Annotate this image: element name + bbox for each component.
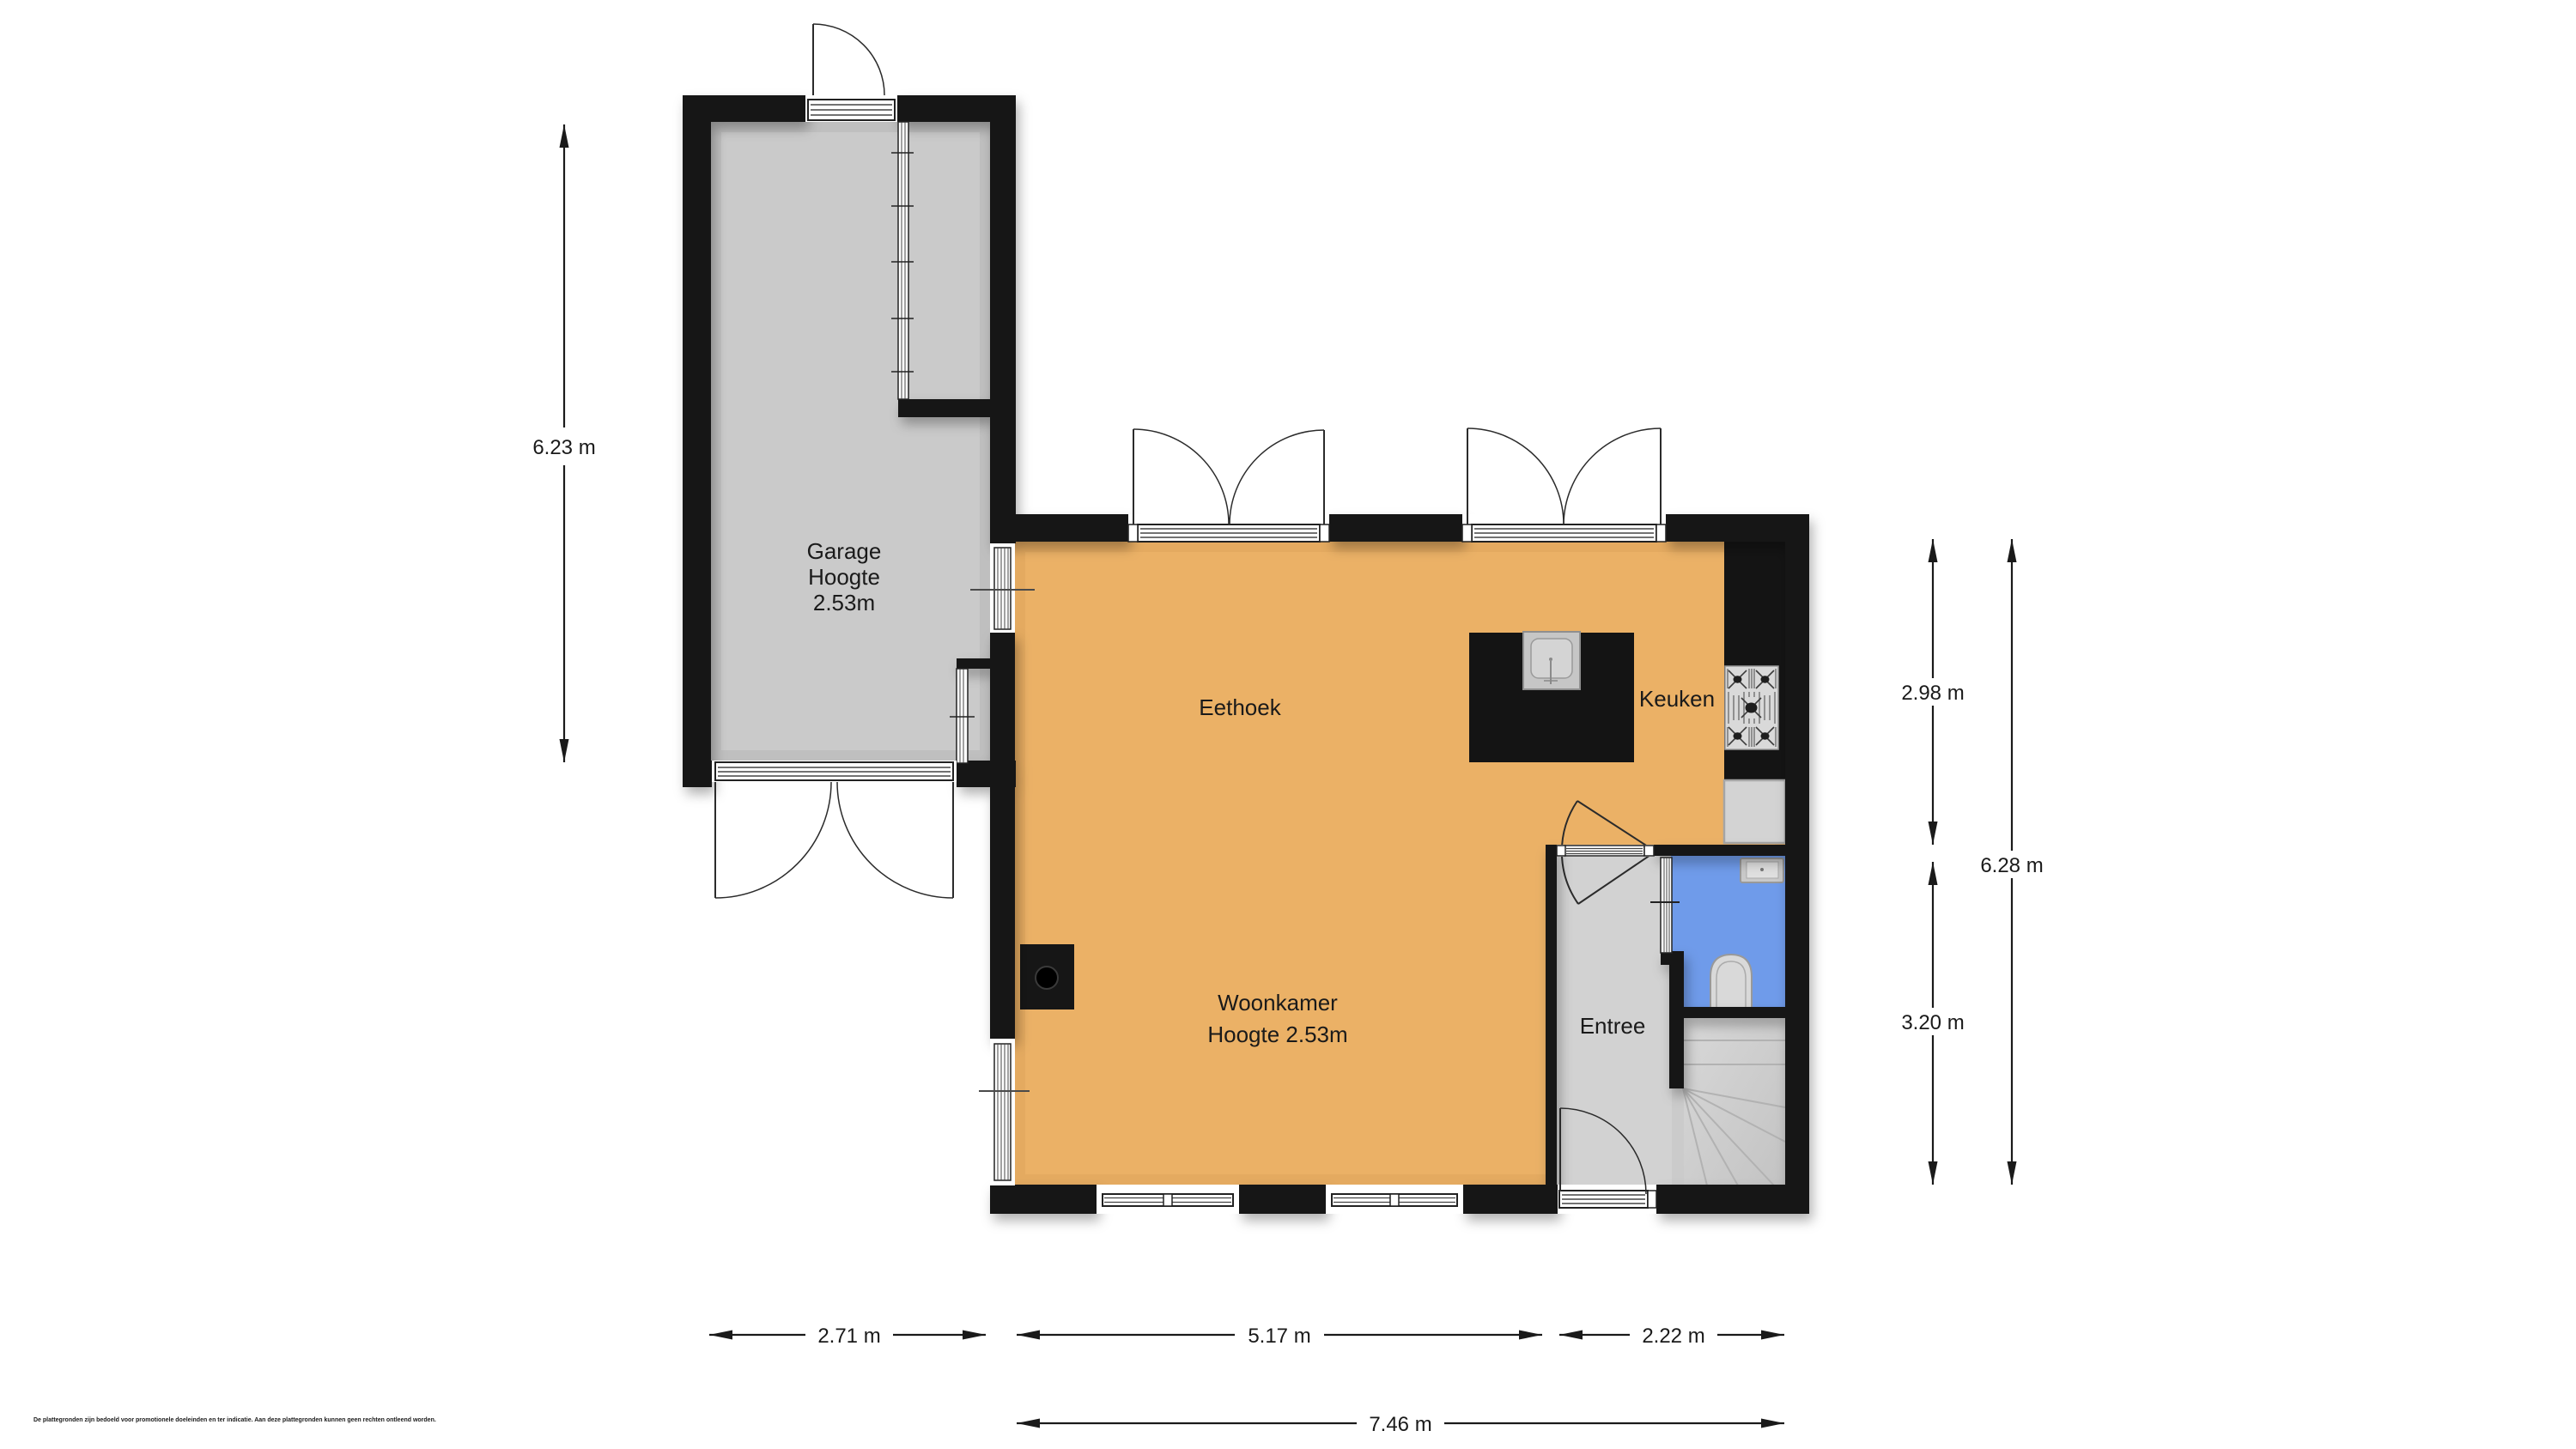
svg-text:6.28 m: 6.28 m: [1980, 854, 2043, 877]
svg-text:Woonkamer: Woonkamer: [1218, 990, 1338, 1016]
svg-text:Entree: Entree: [1580, 1013, 1646, 1039]
svg-text:Keuken: Keuken: [1639, 686, 1715, 712]
svg-text:3.20 m: 3.20 m: [1901, 1011, 1964, 1034]
svg-text:De plattegronden zijn bedoeld: De plattegronden zijn bedoeld voor promo…: [33, 1417, 436, 1423]
svg-text:2.98 m: 2.98 m: [1901, 682, 1964, 705]
svg-text:Garage: Garage: [807, 538, 882, 564]
svg-text:5.17 m: 5.17 m: [1248, 1325, 1310, 1348]
svg-text:2.22 m: 2.22 m: [1642, 1325, 1704, 1348]
svg-text:Hoogte 2.53m: Hoogte 2.53m: [1207, 1022, 1347, 1047]
svg-text:6.23 m: 6.23 m: [532, 436, 595, 459]
svg-text:2.53m: 2.53m: [813, 590, 875, 615]
svg-text:Eethoek: Eethoek: [1199, 694, 1281, 720]
svg-text:Hoogte: Hoogte: [808, 564, 880, 590]
svg-text:7.46 m: 7.46 m: [1369, 1413, 1431, 1436]
svg-text:2.71 m: 2.71 m: [817, 1325, 880, 1348]
